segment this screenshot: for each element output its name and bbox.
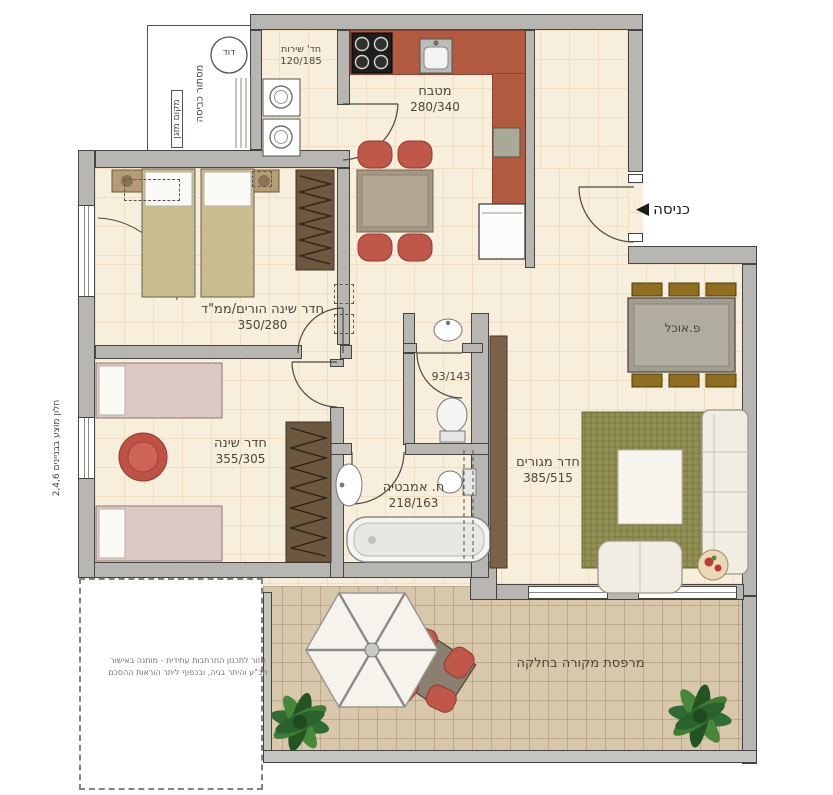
room-dims: 350/280 <box>185 318 340 333</box>
mamad-window-marker <box>252 171 272 187</box>
boiler-label: דוד <box>211 48 247 59</box>
service-room-label: חד' שירות 120/185 <box>260 44 342 68</box>
room-name: חד' שירות <box>260 44 342 56</box>
disclaimer-note: אזור לתכנון התרחבות עתידית - מותנה באישו… <box>100 655 276 680</box>
washing-machine <box>263 79 300 116</box>
room-name: חדר מגורים <box>494 455 602 471</box>
plant <box>667 683 733 749</box>
kitchen-label: מטבח 280/340 <box>385 84 485 115</box>
armchair <box>598 541 682 593</box>
room-dims: 355/305 <box>178 452 303 467</box>
ac-unit-label: מקום מזגן <box>171 90 183 148</box>
side-table-flower <box>698 550 728 580</box>
dryer-machine <box>263 119 300 156</box>
bath-label: ח. אמבטיה 218/163 <box>356 480 471 511</box>
room-name: חדר שינה <box>178 436 303 452</box>
kitchen-table <box>357 170 433 232</box>
fridge <box>479 204 525 259</box>
laundry-screen-label: מסתור כביסה <box>195 49 206 139</box>
entrance-text: כניסה <box>653 200 690 218</box>
disclaimer-line: אזור לתכנון התרחבות עתידית - מותנה באישו… <box>100 655 276 667</box>
balcony-label: מרפסת מקורה בחלקה <box>488 656 673 672</box>
entrance-label: ◀ כניסה <box>636 200 690 218</box>
room-name: מרפסת מקורה בחלקה <box>488 656 673 672</box>
room-dims: 120/185 <box>260 56 342 69</box>
room-name: חדר שינה הורים/ממ"ד <box>185 302 340 318</box>
hall-sink <box>434 319 462 341</box>
plant <box>269 691 332 754</box>
coffee-table <box>618 450 682 524</box>
wc-toilet <box>437 398 467 442</box>
living-room-label: חדר מגורים 385/515 <box>494 455 602 486</box>
parents-room-label: חדר שינה הורים/ממ"ד 350/280 <box>185 302 340 333</box>
room-name: מטבח <box>385 84 485 100</box>
louver-lines <box>236 78 251 148</box>
entrance-arrow-icon: ◀ <box>636 201 649 218</box>
room-dims: 385/515 <box>494 471 602 486</box>
tv-cabinet <box>490 336 507 568</box>
sofa <box>702 410 748 574</box>
counter-appliance <box>493 128 520 157</box>
floor-plan: מטבח 280/340 חד' שירות 120/185 חדר שינה … <box>0 0 833 795</box>
stove <box>352 33 392 73</box>
round-ottoman <box>119 433 167 481</box>
bathtub <box>347 517 491 562</box>
disclaimer-line: תב"ע והיתר בניה, ובכפוף ליתר הוראות ההסכ… <box>100 667 276 679</box>
parents-wardrobe <box>296 170 334 270</box>
kitchen-sink <box>420 39 452 73</box>
bedroom-label: חדר שינה 355/305 <box>178 436 303 467</box>
window-note-label: חלון מוצע בבניינים 2,4,6 <box>52 378 62 518</box>
bedroom-door-swing <box>292 362 337 407</box>
wc-label: 93/143 <box>417 370 485 384</box>
mamad-door-marker <box>334 284 354 304</box>
room-dims: 218/163 <box>356 496 471 511</box>
room-name: ח. אמבטיה <box>356 480 471 496</box>
room-dims: 280/340 <box>385 100 485 115</box>
mamad-window-marker <box>124 179 180 201</box>
room-name: פ.אוכל <box>640 321 725 336</box>
dining-label: פ.אוכל <box>640 321 725 336</box>
room-dims: 93/143 <box>417 370 485 384</box>
entry-door-swing <box>579 187 634 242</box>
